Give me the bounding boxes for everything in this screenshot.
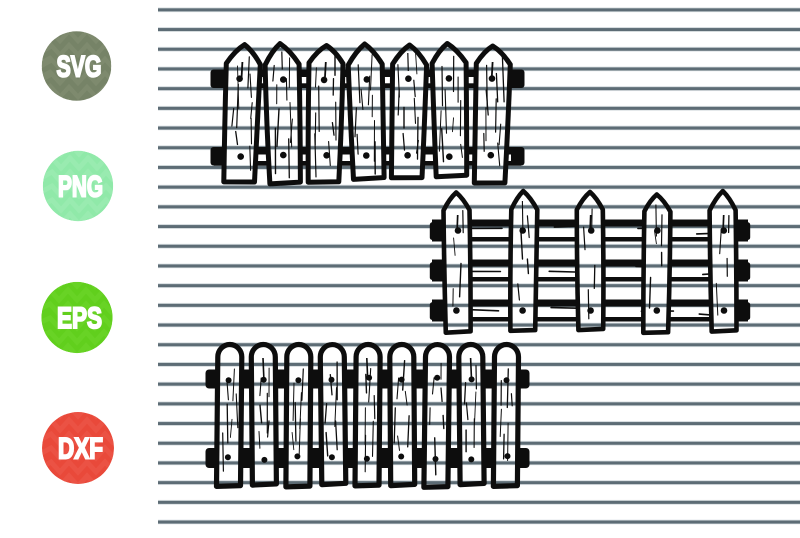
- svg-text:SVG: SVG: [57, 51, 102, 84]
- svg-text:DXF: DXF: [58, 433, 103, 466]
- svg-text:EPS: EPS: [57, 302, 102, 335]
- svg-text:PNG: PNG: [58, 171, 103, 204]
